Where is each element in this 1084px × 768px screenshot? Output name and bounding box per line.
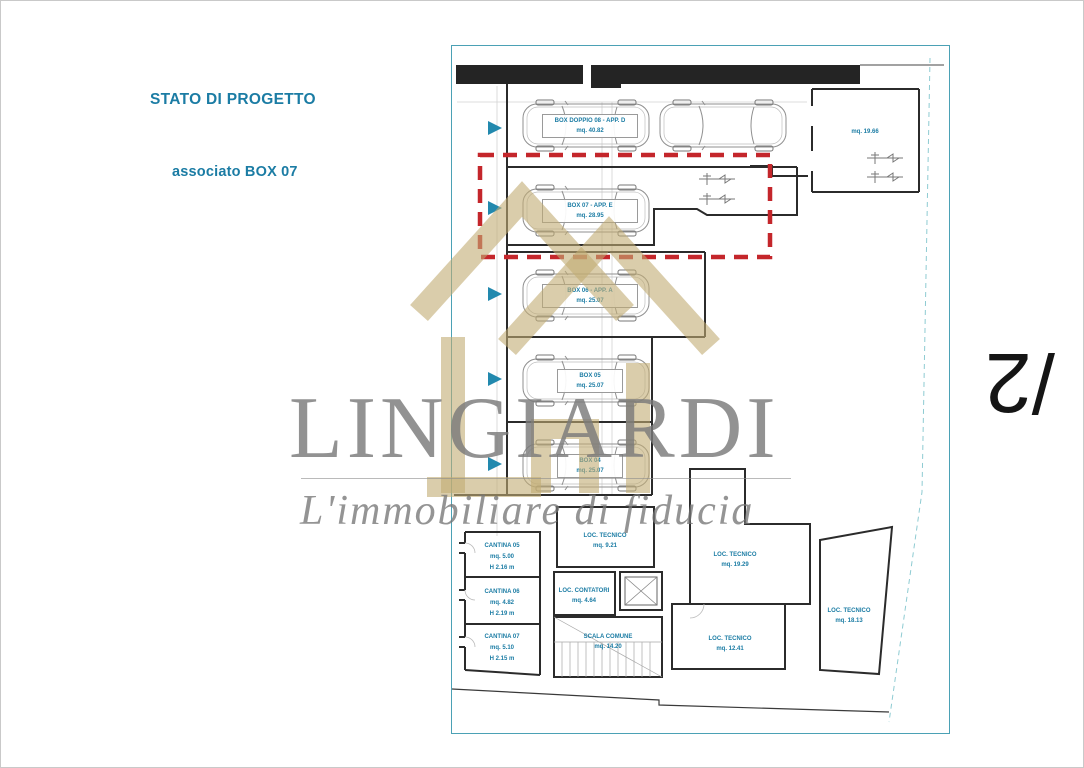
- elevator-icon: [620, 572, 662, 610]
- room-name: CANTINA 07: [484, 634, 519, 640]
- drain-icon: [867, 152, 903, 164]
- pointer-arrow-icon: [488, 372, 502, 386]
- pointer-arrow-icon: [488, 457, 502, 471]
- room-label: CANTINA 05 mq. 5.00 H 2.16 m: [467, 541, 537, 574]
- car-icon: [660, 100, 786, 151]
- room-label: LOC. TECNICO mq. 9.21: [565, 531, 645, 551]
- room-label: LOC. TECNICO mq. 19.29: [695, 550, 775, 570]
- room-name: CANTINA 05: [484, 543, 519, 549]
- room-label: CANTINA 06 mq. 4.82 H 2.19 m: [467, 587, 537, 620]
- box-area: mq. 25.07: [576, 298, 603, 304]
- box-name: BOX 06 - APP. A: [567, 288, 612, 294]
- rotated-page-marker: /2: [974, 331, 1066, 435]
- drain-icons: [699, 152, 903, 205]
- top-wall: [456, 65, 860, 88]
- room-area: mq. 4.64: [572, 598, 596, 604]
- room-name: LOC. TECNICO: [828, 608, 871, 614]
- box-area: mq. 40.82: [576, 128, 603, 134]
- room-label: LOC. CONTATORI mq. 4.64: [549, 586, 619, 606]
- room-area: mq. 9.21: [593, 543, 617, 549]
- room-area: mq. 14.20: [594, 644, 621, 650]
- box-name: BOX 04: [579, 458, 600, 464]
- box-name: BOX 05: [579, 373, 600, 379]
- box-label: BOX 04 mq. 25.07: [557, 454, 623, 478]
- room-area: mq. 18.13: [835, 618, 862, 624]
- box-label: BOX DOPPIO 08 - APP. D mq. 40.82: [542, 114, 638, 138]
- box-name: BOX DOPPIO 08 - APP. D: [555, 118, 626, 124]
- box-name: BOX 07 - APP. E: [567, 203, 612, 209]
- box-label: BOX 06 - APP. A mq. 25.07: [542, 284, 638, 308]
- room-name: LOC. TECNICO: [714, 552, 757, 558]
- room-label: LOC. TECNICO mq. 12.41: [690, 634, 770, 654]
- pointer-arrow-icon: [488, 121, 502, 135]
- room-height: H 2.19 m: [490, 611, 515, 617]
- room-name: LOC. TECNICO: [584, 533, 627, 539]
- floor-plan-sheet: STATO DI PROGETTO associato BOX 07: [0, 0, 1084, 768]
- site-boundary-lines: [452, 689, 889, 712]
- page-title: STATO DI PROGETTO: [150, 91, 316, 109]
- room-area: mq. 5.00: [490, 554, 514, 560]
- room-height: H 2.15 m: [490, 656, 515, 662]
- room-area: mq. 12.41: [716, 646, 743, 652]
- page-subtitle: associato BOX 07: [172, 164, 298, 180]
- room-name: LOC. CONTATORI: [559, 588, 610, 594]
- drain-icon: [699, 193, 735, 205]
- pointer-arrow-icon: [488, 287, 502, 301]
- room-label: mq. 19.66: [825, 127, 905, 137]
- pointer-arrow-icon: [488, 201, 502, 215]
- room-area: mq. 5.10: [490, 645, 514, 651]
- floor-plan-drawing: [452, 46, 949, 733]
- room-area: mq. 4.82: [490, 600, 514, 606]
- room-name: LOC. TECNICO: [709, 636, 752, 642]
- room-height: H 2.16 m: [490, 565, 515, 571]
- box-area: mq. 28.95: [576, 213, 603, 219]
- room-label: SCALA COMUNE mq. 14.20: [568, 632, 648, 652]
- box-label: BOX 05 mq. 25.07: [557, 369, 623, 393]
- room-name: CANTINA 06: [484, 589, 519, 595]
- room-label: LOC. TECNICO mq. 18.13: [809, 606, 889, 626]
- room-label: CANTINA 07 mq. 5.10 H 2.15 m: [467, 632, 537, 665]
- room-area: mq. 19.29: [721, 562, 748, 568]
- drain-icon: [699, 173, 735, 185]
- room-name: SCALA COMUNE: [584, 634, 633, 640]
- box-area: mq. 25.07: [576, 383, 603, 389]
- drain-icon: [867, 171, 903, 183]
- box-label: BOX 07 - APP. E mq. 28.95: [542, 199, 638, 223]
- floor-plan: BOX DOPPIO 08 - APP. D mq. 40.82 BOX 07 …: [451, 45, 950, 734]
- box-area: mq. 25.07: [576, 468, 603, 474]
